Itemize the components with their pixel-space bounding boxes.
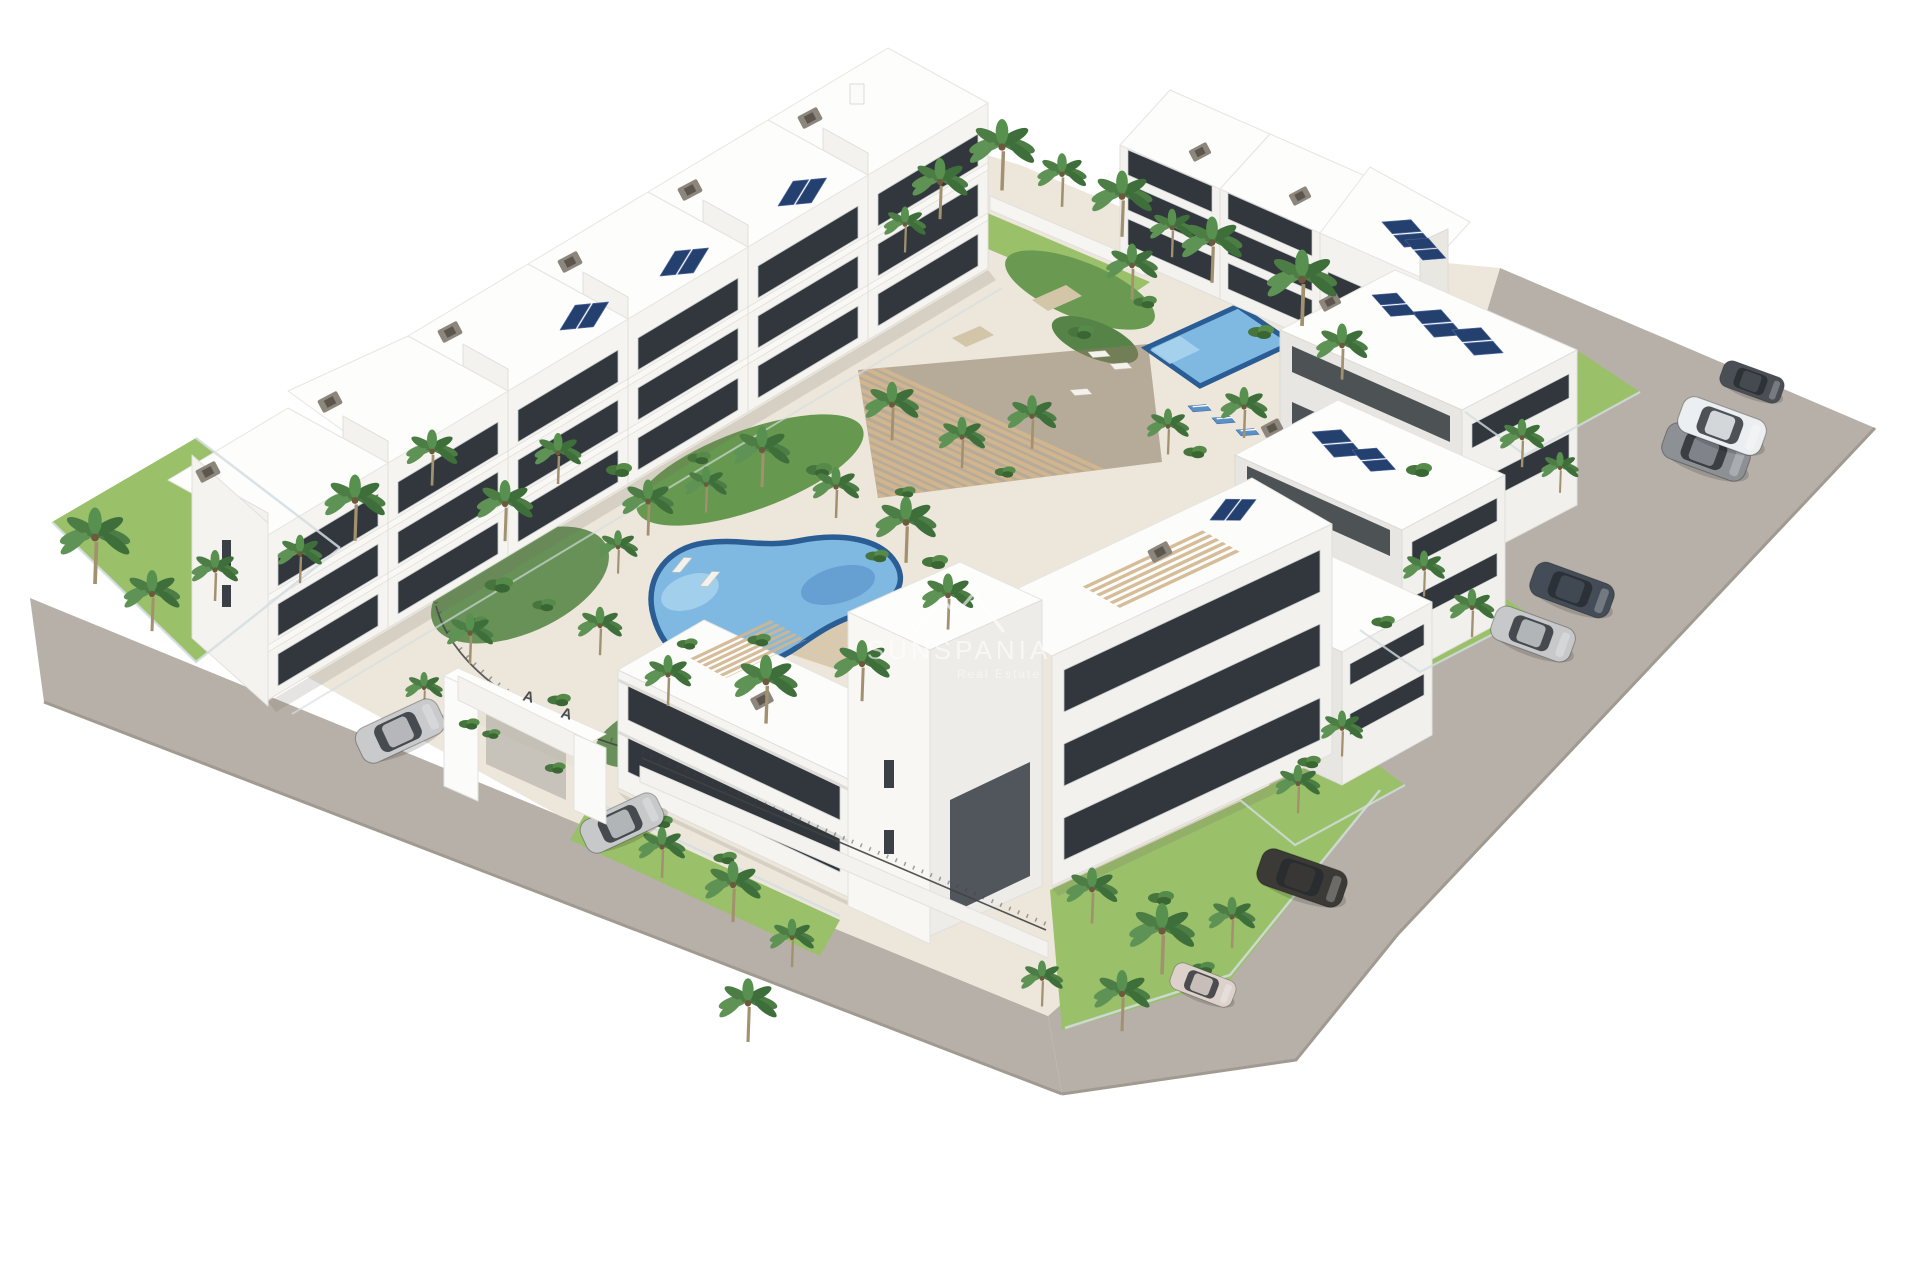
slit-window	[884, 830, 894, 854]
slit-window	[884, 760, 894, 788]
watermark-brand: SUNSPANIA	[867, 635, 1051, 665]
watermark-tagline: Real Estate	[957, 667, 1041, 681]
slit-window	[222, 585, 231, 607]
gate-pillar	[574, 734, 606, 824]
rooftop-chimney	[850, 84, 864, 104]
architectural-render-scene: A A SUNSPANIA Real Estate	[0, 0, 1920, 1280]
